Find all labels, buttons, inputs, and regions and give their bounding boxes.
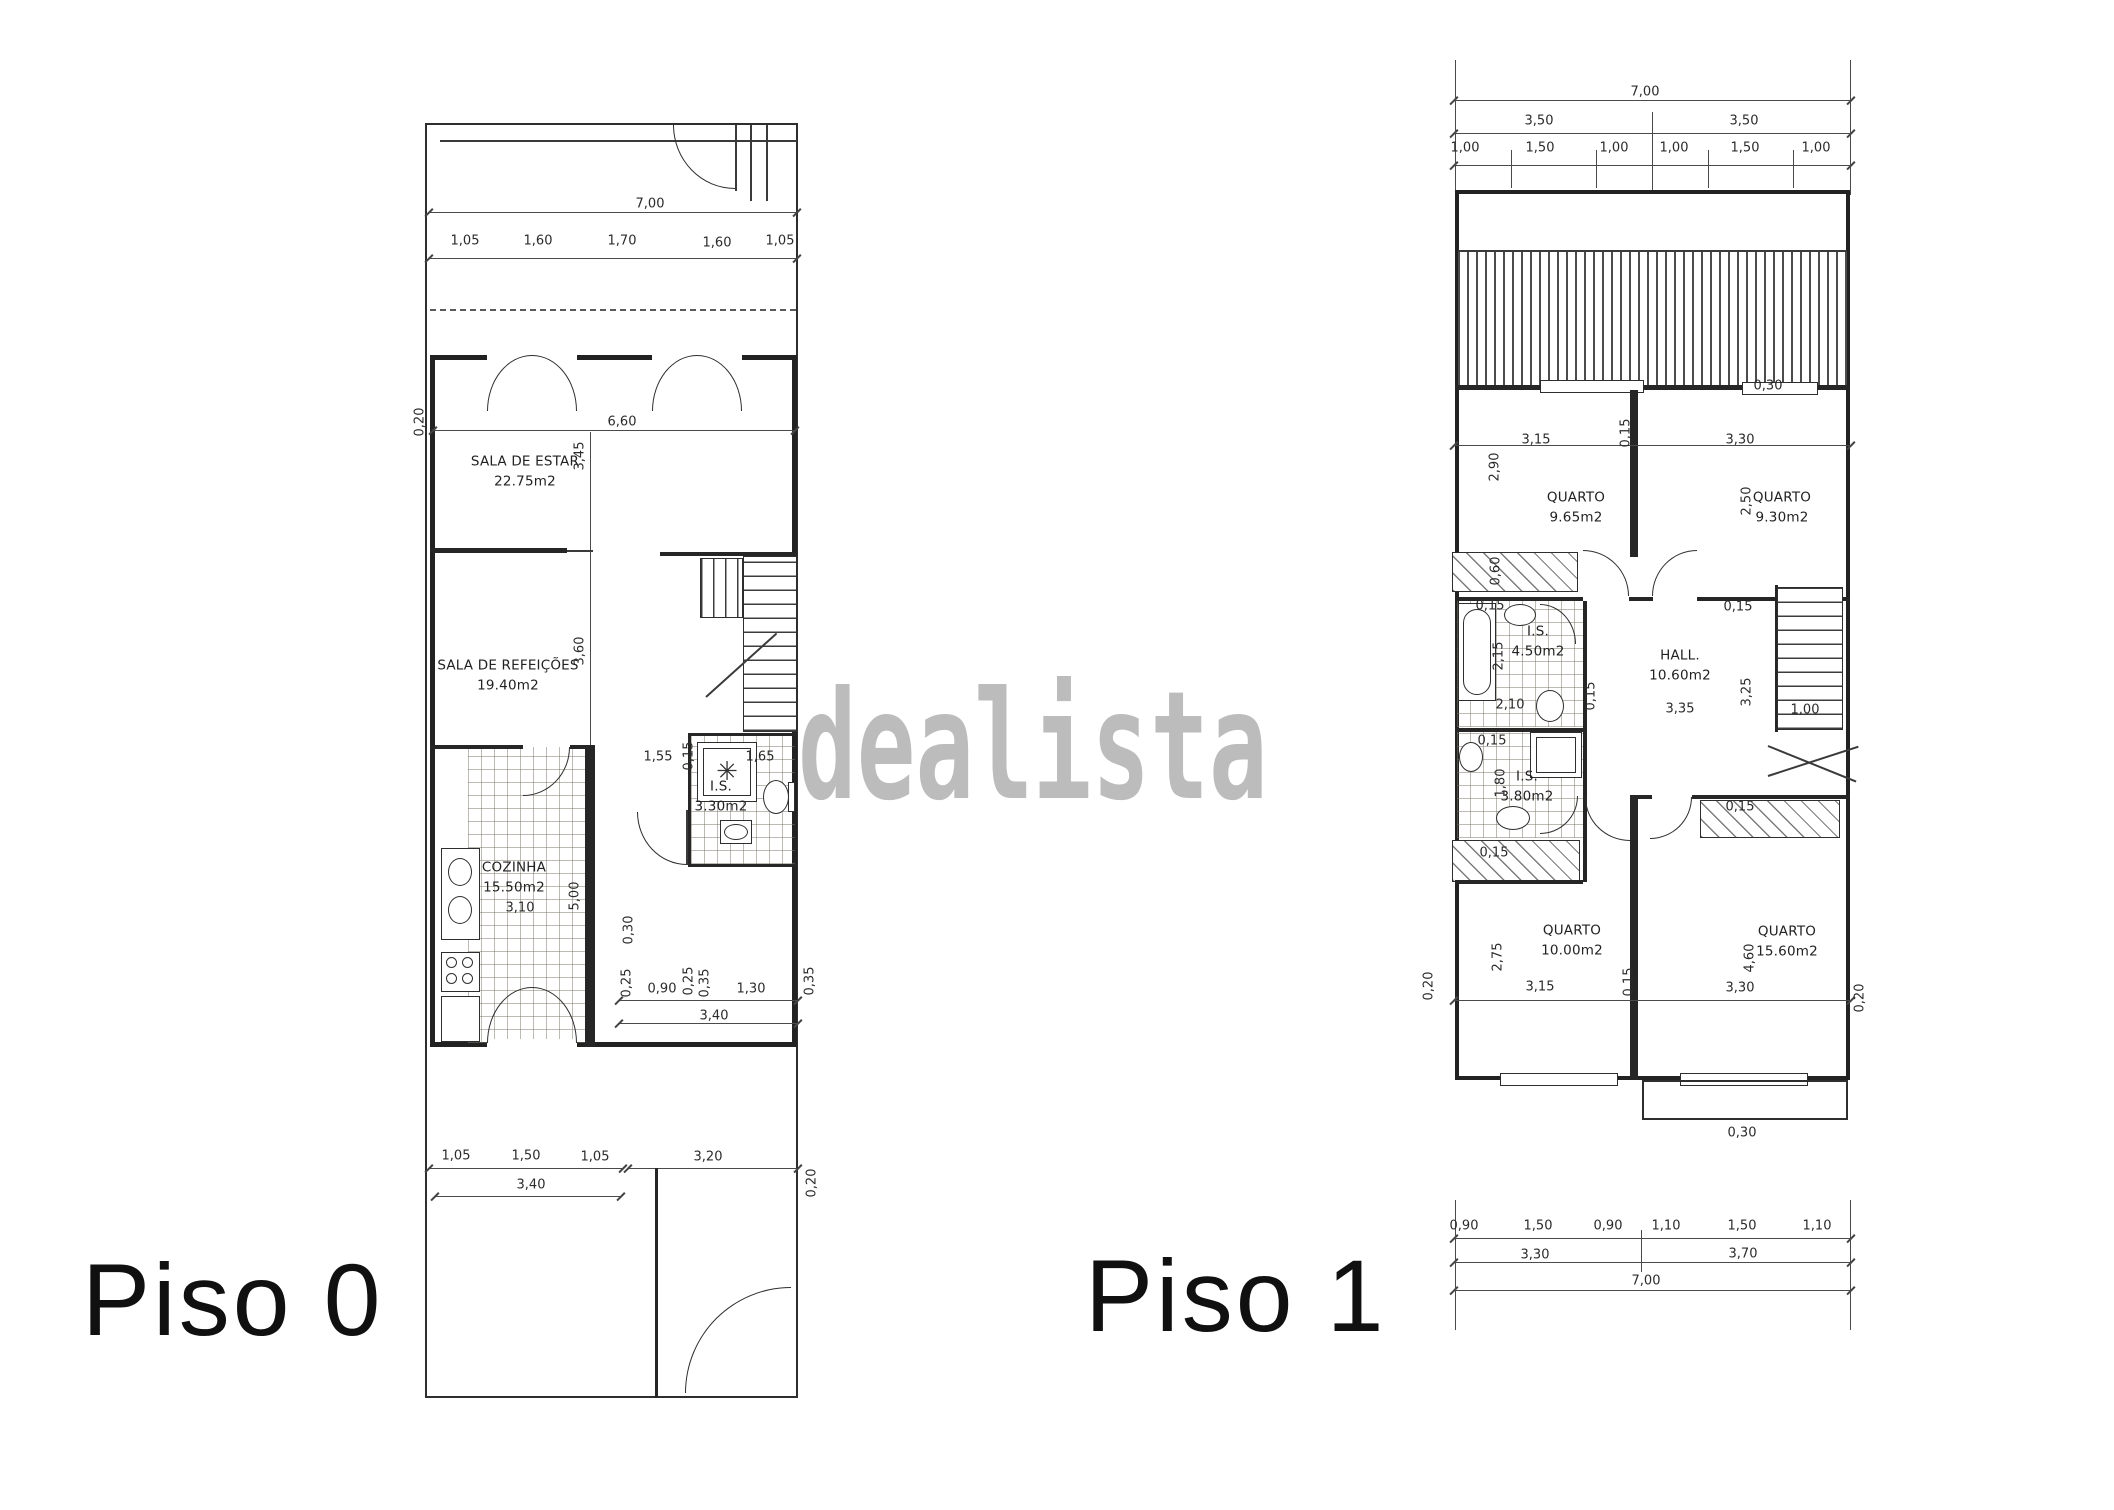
watermark: dealista <box>798 672 1268 822</box>
decoration: COZINHA <box>482 858 546 878</box>
dimension-label: 3,20 <box>694 1151 723 1164</box>
decoration: 9.65m2 <box>1547 508 1605 528</box>
decoration: 10.60m2 <box>1649 666 1711 686</box>
dimension-label: 1,00 <box>1451 142 1480 155</box>
decoration: HALL. <box>1649 646 1711 666</box>
dimension-label: 3,35 <box>1666 703 1695 716</box>
dimension-label: 1,00 <box>1791 704 1820 717</box>
decoration: 22.75m2 <box>471 472 579 492</box>
dimension-label: 1,05 <box>442 1150 471 1163</box>
decoration: SALA DE REFEIÇÕES <box>437 656 578 676</box>
dimension-label: 1,00 <box>1660 142 1689 155</box>
decoration: 4.50m2 <box>1512 642 1565 662</box>
dimension-label: 1,60 <box>703 237 732 250</box>
dimension-label: 1,10 <box>1652 1220 1681 1233</box>
dimension-label: 1,05 <box>581 1151 610 1164</box>
dimension-label: 0,15 <box>1726 801 1755 814</box>
room-label-quarto: QUARTO10.00m2 <box>1541 921 1603 960</box>
dimension-label: 0,20 <box>1423 972 1436 1001</box>
dimension-label: 1,00 <box>1802 142 1831 155</box>
dimension-label: 4,60 <box>1744 944 1757 973</box>
decoration: I.S. <box>1512 622 1565 642</box>
dimension-label: 7,00 <box>1631 86 1660 99</box>
dimension-label: 0,15 <box>1585 682 1598 711</box>
decoration: QUARTO <box>1541 921 1603 941</box>
decoration: 15.50m2 <box>482 878 546 898</box>
dimension-label: 2,50 <box>1741 487 1754 516</box>
dimension-label: 1,60 <box>524 235 553 248</box>
dimension-label: 3,40 <box>700 1010 729 1023</box>
decoration: I.S. <box>1501 767 1554 787</box>
dimension-label: 0,15 <box>683 742 696 771</box>
decoration: 9.30m2 <box>1753 508 1811 528</box>
decoration: QUARTO <box>1756 922 1818 942</box>
dimension-label: 1,05 <box>766 235 795 248</box>
decoration: 10.00m2 <box>1541 941 1603 961</box>
dimension-label: 0,20 <box>414 408 427 437</box>
room-label-i-s-: I.S.4.50m2 <box>1512 622 1565 661</box>
dimension-label: 3,15 <box>1522 434 1551 447</box>
dimension-label: 0,15 <box>1620 419 1633 448</box>
dimension-label: 1,05 <box>451 235 480 248</box>
room-label-cozinha: COZINHA15.50m2 <box>482 858 546 897</box>
dimension-label: 0,35 <box>804 967 817 996</box>
dimension-label: 0,20 <box>1854 984 1867 1013</box>
dimension-label: 3,50 <box>1525 115 1554 128</box>
decoration: SALA DE ESTAR <box>471 452 579 472</box>
dimension-label: 1,50 <box>1526 142 1555 155</box>
dimension-label: 7,00 <box>636 198 665 211</box>
dimension-label: 0,25 <box>621 969 634 998</box>
dimension-label: 0,35 <box>699 969 712 998</box>
dimension-label: 2,15 <box>1493 642 1506 671</box>
room-label-sala-de-refei-es: SALA DE REFEIÇÕES19.40m2 <box>437 656 578 695</box>
decoration: QUARTO <box>1547 488 1605 508</box>
room-label-sala-de-estar: SALA DE ESTAR22.75m2 <box>471 452 579 491</box>
dimension-label: 1,30 <box>737 983 766 996</box>
dimension-label: 5,00 <box>569 882 582 911</box>
dimension-label: 1,65 <box>746 751 775 764</box>
dimension-label: 3,70 <box>1729 1248 1758 1261</box>
dimension-label: 0,60 <box>1490 557 1503 586</box>
dimension-label: 0,15 <box>1480 847 1509 860</box>
room-label-i-s-: I.S.3.30m2 <box>695 777 748 816</box>
dimension-label: 0,15 <box>1476 600 1505 613</box>
room-label-hall-: HALL.10.60m2 <box>1649 646 1711 685</box>
dimension-label: 1,50 <box>1524 1220 1553 1233</box>
dimension-label: 1,50 <box>1728 1220 1757 1233</box>
room-label-quarto: QUARTO9.65m2 <box>1547 488 1605 527</box>
decoration: 3.30m2 <box>695 797 748 817</box>
dimension-label: 0,25 <box>683 967 696 996</box>
dimension-label: 6,60 <box>608 416 637 429</box>
dimension-label: 0,30 <box>1754 380 1783 393</box>
room-label-quarto: QUARTO9.30m2 <box>1753 488 1811 527</box>
dimension-label: 1,50 <box>512 1150 541 1163</box>
decoration: I.S. <box>695 777 748 797</box>
dimension-label: 2,90 <box>1489 453 1502 482</box>
dimension-label: 0,30 <box>623 916 636 945</box>
dimension-label: 3,15 <box>1526 981 1555 994</box>
dimension-label: 1,70 <box>608 235 637 248</box>
decoration: 19.40m2 <box>437 676 578 696</box>
decoration: QUARTO <box>1753 488 1811 508</box>
decoration: 3.80m2 <box>1501 787 1554 807</box>
dimension-label: 0,90 <box>648 983 677 996</box>
dimension-label: 3,40 <box>517 1179 546 1192</box>
dimension-label: 3,30 <box>1521 1249 1550 1262</box>
dimension-label: 2,75 <box>1492 943 1505 972</box>
floorplan-canvas: dealista Piso 0 Piso 1 7,001,051,601,701… <box>0 0 2114 1510</box>
dimension-label: 3,50 <box>1730 115 1759 128</box>
dimension-label: 3,10 <box>506 902 535 915</box>
dimension-label: 2,10 <box>1496 699 1525 712</box>
room-label-quarto: QUARTO15.60m2 <box>1756 922 1818 961</box>
dimension-label: 1,50 <box>1731 142 1760 155</box>
dimension-label: 1,00 <box>1600 142 1629 155</box>
dimension-label: 3,30 <box>1726 434 1755 447</box>
dimension-label: 0,15 <box>1623 968 1636 997</box>
dimension-label: 0,90 <box>1450 1220 1479 1233</box>
dimension-label: 3,30 <box>1726 982 1755 995</box>
dimension-label: 0,90 <box>1594 1220 1623 1233</box>
dimension-label: 1,10 <box>1803 1220 1832 1233</box>
dimension-label: 7,00 <box>1632 1275 1661 1288</box>
dimension-label: 0,15 <box>1724 601 1753 614</box>
room-label-i-s-: I.S.3.80m2 <box>1501 767 1554 806</box>
dimension-label: 0,30 <box>1728 1127 1757 1140</box>
dimension-label: 1,55 <box>644 751 673 764</box>
decoration: 15.60m2 <box>1756 942 1818 962</box>
dimension-label: 0,15 <box>1478 735 1507 748</box>
dimension-label: 0,20 <box>806 1169 819 1198</box>
dimension-label: 3,25 <box>1741 678 1754 707</box>
